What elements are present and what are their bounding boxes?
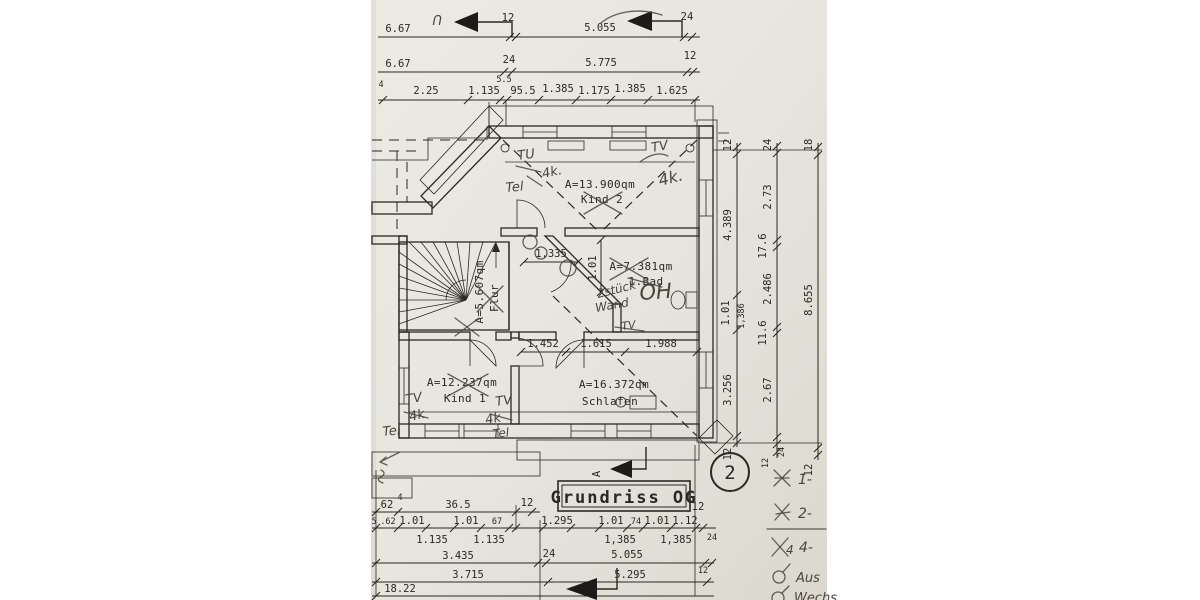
dim-label: 1,385 [660, 534, 692, 546]
dim-label: 4.389 [722, 209, 734, 241]
dim-label: 5.5 [496, 75, 511, 85]
sheet-number: 2 [724, 462, 735, 484]
dim-label: 1.01 [598, 515, 623, 527]
dim-label: 1.01 [399, 515, 424, 527]
room-area-kind2: A=13.900qm [565, 178, 635, 191]
dim-label: 36.5 [445, 499, 470, 511]
dim-label: 18.22 [384, 583, 416, 595]
dim-label: 3.256 [722, 374, 734, 406]
dim-label: .62 [380, 517, 395, 527]
paper-edge-shadow [371, 0, 376, 600]
dim-label: 4 [397, 493, 402, 503]
dim-label: 1.335 [535, 248, 567, 260]
dim-label: 95.5 [510, 85, 535, 97]
legend-item-3: 4- [799, 540, 813, 556]
dim-label: 5.055 [584, 22, 616, 34]
dim-label: 1.988 [645, 338, 677, 350]
dim-label: 12 [698, 566, 708, 576]
room-name-schlafen: Schlafen [582, 395, 638, 408]
dim-label: 18 [803, 139, 815, 152]
dim-label: 8.655 [803, 284, 815, 316]
dim-label: 1.135 [468, 85, 500, 97]
dim-label: 1.625 [656, 85, 688, 97]
dim-label: 17.6 [757, 233, 769, 258]
dim-label: 1.135 [473, 534, 505, 546]
dim-label: 5 [371, 517, 376, 527]
dim-label: 2.486 [762, 273, 774, 305]
dim-label: 3.435 [442, 550, 474, 562]
dim-label: 1.12 [672, 515, 697, 527]
screenshot-root: 6.67 12 5.055 24 6.67 24 5.775 12 4 2.25… [0, 0, 1200, 600]
dim-label: 67 [492, 517, 502, 527]
drawing-title: Grundriss OG [551, 488, 698, 508]
legend-item-2: 2- [798, 506, 812, 522]
dim-label: 4 [378, 80, 383, 90]
note-kind1-right-tv: TV [494, 393, 514, 410]
note-kind2-left-tel: Tel [505, 179, 525, 196]
note-kind1-left-tel: Tel [382, 423, 402, 440]
dim-label: 11.6 [757, 320, 769, 345]
dim-label: 1.01 [453, 515, 478, 527]
dim-label: 24 [707, 533, 717, 543]
dim-label: 24 [777, 447, 787, 457]
dim-label: 74 [631, 517, 641, 527]
note-kind1-right-tel: Tel [492, 425, 511, 441]
dim-label: 1,385 [604, 534, 636, 546]
dim-label: 1.295 [541, 515, 573, 527]
room-name-kind1: Kind 1 [444, 392, 486, 405]
dim-label: 1.385 [542, 83, 574, 95]
note-kind2-left-tu: TU [516, 147, 536, 164]
dim-label: 5.055 [611, 549, 643, 561]
dim-label: 12 [722, 139, 734, 152]
dim-label: 1.01 [720, 300, 732, 325]
dim-label: 1.615 [580, 338, 612, 350]
legend-item-5: Wechs [794, 591, 837, 600]
dim-label: 2.73 [762, 184, 774, 209]
dim-label: 5.295 [614, 569, 646, 581]
floor-plan-photo: 6.67 12 5.055 24 6.67 24 5.775 12 4 2.25… [0, 0, 1200, 600]
dim-label: 2.67 [762, 377, 774, 402]
legend-symbol-4: 4 [786, 543, 794, 557]
dim-label: 6.67 [385, 23, 410, 35]
dim-label: 24 [762, 139, 774, 152]
legend-item-1: 1- [798, 472, 812, 488]
dim-label: 1.385 [614, 83, 646, 95]
dim-label: 1,386 [737, 303, 747, 329]
dim-label: 1.452 [527, 338, 559, 350]
pencil-bracket: U [432, 11, 442, 26]
dim-label: 1.135 [416, 534, 448, 546]
dim-label: 3.715 [452, 569, 484, 581]
legend-item-4: Aus [795, 571, 820, 586]
dim-label: 1.01 [644, 515, 669, 527]
dim-label: 24 [543, 548, 556, 560]
dim-label: 5.775 [585, 57, 617, 69]
dim-label: 62 [381, 499, 394, 511]
dim-label: 12 [684, 50, 697, 62]
dim-label: 1.175 [578, 85, 610, 97]
section-letter: A [591, 470, 603, 477]
dim-label: 12 [761, 458, 771, 468]
dim-label: 6.67 [385, 58, 410, 70]
dim-label: 24 [503, 54, 516, 66]
dim-label: 12 [521, 497, 534, 509]
dim-label: 1.01 [587, 255, 599, 280]
room-area-kind1: A=12.237qm [427, 376, 497, 389]
room-area-flur: A=5.607qm [473, 260, 486, 323]
dim-label: 2.25 [413, 85, 438, 97]
room-area-schlafen: A=16.372qm [579, 378, 649, 391]
